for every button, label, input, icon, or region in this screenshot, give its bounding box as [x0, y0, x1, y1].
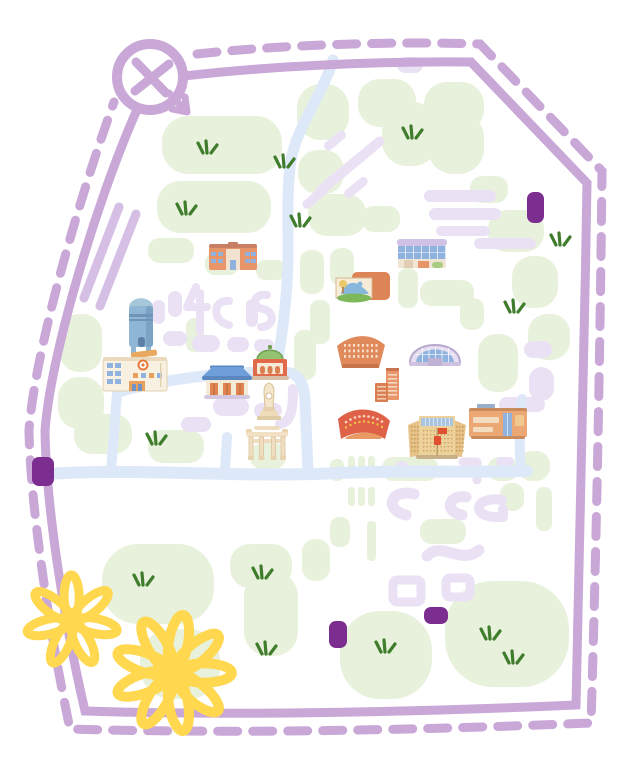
lawn-strip — [368, 487, 375, 506]
lawn-patch — [460, 298, 484, 330]
building-block — [427, 550, 479, 556]
lawn-patch — [398, 268, 418, 308]
building-block — [213, 397, 249, 416]
lawn-strip — [348, 487, 355, 506]
building-block — [227, 337, 249, 352]
lawn-patch — [244, 572, 298, 656]
lawn-patch — [74, 414, 132, 454]
lawn-patch — [367, 521, 376, 561]
building-block — [342, 175, 369, 200]
building-block — [163, 331, 187, 346]
building-cream-office-building — [103, 349, 167, 391]
lawn-patch — [102, 544, 214, 624]
building-block — [479, 499, 503, 517]
building-fan-lecture-hall — [337, 336, 385, 368]
building-block — [392, 493, 414, 515]
road-lavender — [100, 214, 136, 306]
building-block — [424, 190, 496, 202]
campus-gate-marker — [424, 607, 448, 624]
building-block — [216, 301, 229, 325]
road — [225, 437, 227, 471]
building-block — [429, 208, 501, 220]
building-classroom-building-north — [209, 242, 257, 270]
building-block — [524, 341, 552, 358]
building-block — [436, 226, 490, 236]
building-red-stadium — [338, 409, 390, 439]
lawn-patch — [478, 334, 518, 392]
campus-gate-marker — [329, 621, 347, 648]
lawn-patch — [362, 206, 400, 232]
road — [46, 471, 527, 474]
grass-tuft — [291, 214, 310, 226]
lawn-patch — [512, 256, 558, 308]
campus-gate-marker — [527, 192, 544, 223]
lawn-patch — [300, 250, 324, 294]
grass-tuft — [551, 233, 570, 245]
lawn-patch — [536, 487, 552, 531]
lawn-patch — [157, 181, 271, 233]
lawn-patch — [148, 238, 194, 263]
building-modern-library — [397, 239, 447, 268]
lawn-patch — [420, 519, 466, 544]
building-main-building-with-flag — [408, 416, 466, 459]
lawn-strip — [358, 487, 365, 506]
building-block — [280, 389, 293, 424]
road — [111, 393, 117, 471]
campus-map-canvas — [0, 0, 640, 765]
building-block — [349, 134, 386, 167]
campus-gate-marker — [32, 457, 54, 486]
building-block — [496, 457, 514, 466]
lawn-patch — [330, 517, 350, 547]
building-block — [474, 238, 536, 249]
building-block — [450, 497, 466, 515]
building-orange-highrise — [375, 368, 399, 402]
building-domed-gymnasium — [409, 345, 461, 366]
building-block — [529, 367, 554, 401]
building-water-tower — [129, 298, 153, 354]
building-block — [192, 335, 220, 352]
building-block — [152, 300, 165, 324]
compass-group — [117, 44, 187, 112]
courtyard-block — [446, 578, 470, 597]
building-monument-obelisk — [257, 383, 281, 420]
building-block — [168, 291, 182, 317]
building-block — [181, 417, 211, 432]
campus-map-illustration — [0, 0, 640, 765]
building-blue-roof-hall — [202, 366, 252, 400]
lawn-patch — [302, 539, 330, 581]
building-orange-slab-building — [469, 404, 527, 439]
lawn-patch — [162, 116, 282, 174]
courtyard-block — [393, 580, 421, 602]
lawn-patch — [256, 260, 286, 280]
lawn-patch — [428, 112, 484, 174]
lawn-patch — [340, 611, 432, 699]
